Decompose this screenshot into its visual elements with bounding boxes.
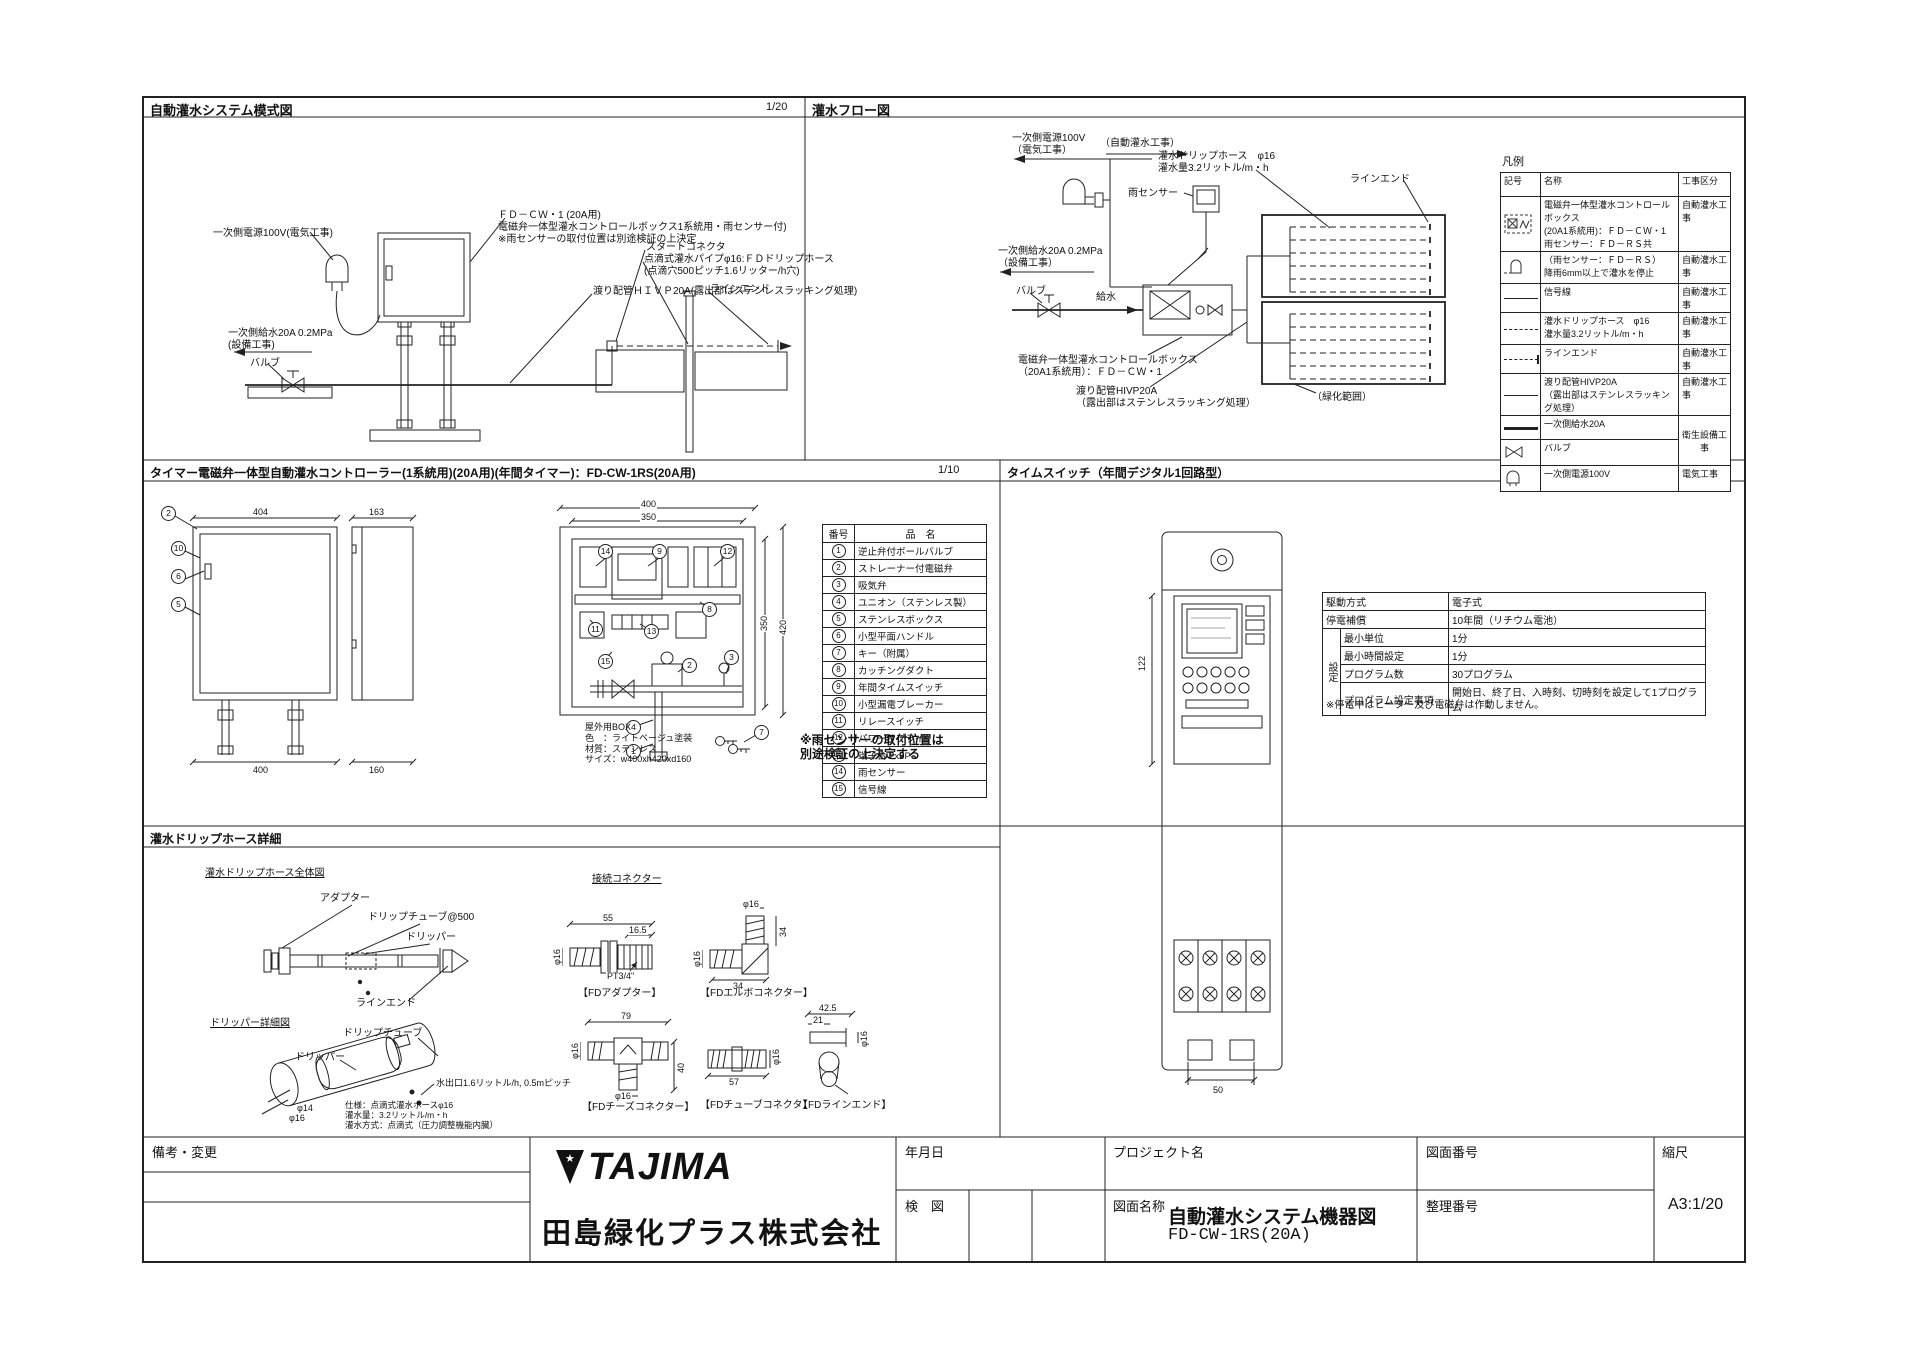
- parts-table-row: 5 ステンレスボックス: [823, 611, 987, 628]
- subtitle-hose-overall: 灌水ドリップホース全体図: [205, 868, 325, 880]
- pipe-line-symbol-icon: [1501, 374, 1541, 416]
- legend-row: 一次側給水20A 衛生設備工事: [1501, 416, 1731, 440]
- dim-elbow-dia-left: φ16: [693, 950, 702, 968]
- part-name: キー（附属）: [855, 645, 987, 662]
- part-number: 11: [832, 714, 846, 728]
- drawing-title: 自動灌水システム機器図: [1168, 1202, 1376, 1229]
- dim-inner-right2: 420: [779, 619, 788, 636]
- ref-no-label: 整理番号: [1426, 1196, 1478, 1215]
- drawing-code: FD-CW-1RS(20A): [1168, 1226, 1311, 1245]
- dim-tube-57: 57: [728, 1078, 740, 1087]
- legend-category: 自動灌水工事: [1679, 252, 1731, 284]
- flow-label-line-end: ラインエンド: [1350, 174, 1410, 186]
- spec-value: 1分: [1449, 647, 1706, 665]
- part-number: 6: [832, 629, 846, 643]
- callout-3: 3: [724, 650, 739, 665]
- timeswitch-spec-table: 駆動方式 電子式 停電補償 10年間（リチウム電池） 設定 最小単位 1分 最小…: [1322, 592, 1706, 716]
- label-start-connector: スタートコネクタ: [646, 242, 726, 254]
- project-label: プロジェクト名: [1113, 1142, 1204, 1161]
- callout-14: 14: [598, 544, 613, 559]
- callout-11: 11: [588, 622, 603, 637]
- part-name: 雨センサー: [855, 764, 987, 781]
- dim-inner-top2: 350: [640, 513, 657, 522]
- callout-5: 5: [171, 597, 186, 612]
- label-detail-tube: ドリップチューブ: [343, 1028, 422, 1040]
- callout-6: 6: [171, 569, 186, 584]
- legend-category: 自動灌水工事: [1679, 197, 1731, 252]
- dim-lineend-21: 21: [812, 1016, 824, 1025]
- legend-category: 自動灌水工事: [1679, 313, 1731, 345]
- legend-name: 信号線: [1541, 284, 1679, 313]
- label-controller-box: ＦＤ－ＣＷ・1 (20A用) 電磁弁一体型灌水コントロールボックス1系統用・雨セ…: [498, 210, 787, 246]
- legend-category: 電気工事: [1679, 466, 1731, 492]
- cad-drawing-sheet: 自動灌水システム模式図 1/20 灌水フロー図 タイマー電磁弁一体型自動灌水コン…: [0, 0, 1920, 1358]
- dim-adapter-16-5: 16.5: [628, 926, 648, 935]
- flow-label-valve: バルブ: [1016, 286, 1046, 298]
- dim-tee-dia-left: φ16: [571, 1042, 580, 1060]
- part-number: 9: [832, 680, 846, 694]
- company-name: 田島緑化プラス株式会社: [542, 1210, 882, 1252]
- dim-front-bottom: 400: [252, 766, 269, 775]
- dim-adapter-dia: φ16: [553, 948, 562, 966]
- panel-schematic-title: 自動灌水システム模式図: [150, 100, 293, 119]
- dim-tee-79: 79: [620, 1012, 632, 1021]
- legend-name: ラインエンド: [1541, 345, 1679, 374]
- legend-row: 渡り配管HIVP20A （露出部はステンレスラッキング処理） 自動灌水工事: [1501, 374, 1731, 416]
- part-number: 15: [832, 782, 846, 796]
- flow-label-power: 一次側電源100V （電気工事）: [1012, 133, 1085, 157]
- parts-table-row: 3 吸気弁: [823, 577, 987, 594]
- dim-dia16: φ16: [288, 1114, 306, 1123]
- label-drip-tube: ドリップチューブ@500: [368, 912, 474, 924]
- panel-timeswitch-title: タイムスイッチ（年間デジタル1回路型）: [1007, 464, 1229, 481]
- callout-2: 2: [161, 506, 176, 521]
- part-name: 年間タイムスイッチ: [855, 679, 987, 696]
- label-hose-line-end: ラインエンド: [356, 998, 416, 1010]
- panel-controller-scale: 1/10: [938, 464, 959, 476]
- flow-label-control-box: 電磁弁一体型灌水コントロールボックス （20A1系統用）：ＦＤ－ＣＷ・1: [1018, 355, 1198, 379]
- callout-10: 10: [171, 541, 186, 556]
- label-drip-pipe: 点滴式灌水パイプφ16:ＦＤドリップホース (点滴穴500ピッチ1.6リッター/…: [644, 254, 834, 278]
- legend-row: 信号線 自動灌水工事: [1501, 284, 1731, 313]
- scale-label: 縮尺: [1662, 1142, 1688, 1161]
- spec-label: 駆動方式: [1323, 593, 1449, 611]
- legend-name: 渡り配管HIVP20A （露出部はステンレスラッキング処理）: [1541, 374, 1679, 416]
- legend-row: （雨センサー：ＦＤ－ＲＳ） 降雨6mm以上で灌水を停止 自動灌水工事: [1501, 252, 1731, 284]
- parts-header-no: 番号: [823, 525, 855, 543]
- dim-tee-40: 40: [677, 1062, 686, 1074]
- supply-line-symbol-icon: [1501, 416, 1541, 440]
- scale-value: A3:1/20: [1668, 1196, 1723, 1214]
- legend-name: 一次側給水20A: [1541, 416, 1679, 440]
- signal-line-symbol-icon: [1501, 284, 1541, 313]
- parts-table-row: 6 小型平面ハンドル: [823, 628, 987, 645]
- legend-title: 凡例: [1502, 156, 1524, 169]
- label-water-outlet: 水出口1.6リットル/h, 0.5mピッチ: [436, 1078, 571, 1089]
- legend-row: 電磁弁一体型灌水コントロールボックス (20A1系統用)：ＦＤ－ＣＷ・1 雨セン…: [1501, 197, 1731, 252]
- drawing-no-label: 図面番号: [1426, 1142, 1478, 1161]
- connector-tube-label: 【FDチューブコネクタ】: [700, 1100, 812, 1112]
- part-number: 7: [832, 646, 846, 660]
- dim-inner-right: 350: [760, 615, 769, 632]
- controlbox-symbol-icon: [1501, 197, 1541, 252]
- part-number: 8: [832, 663, 846, 677]
- tajima-logo-star-icon: ★: [565, 1152, 575, 1165]
- connector-elbow-label: 【FDエルボコネクター】: [700, 988, 813, 1000]
- drawing-title-label: 図面名称: [1113, 1196, 1165, 1215]
- legend-name: 灌水ドリップホース φ16 灌水量3.2リットル/m・h: [1541, 313, 1679, 345]
- dim-side-top: 163: [368, 508, 385, 517]
- legend-name: バルブ: [1541, 440, 1679, 466]
- panel-driphose-title: 灌水ドリップホース詳細: [150, 830, 281, 847]
- part-name: 逆止弁付ボールバルブ: [855, 543, 987, 560]
- part-name: ユニオン（ステンレス製）: [855, 594, 987, 611]
- legend-header-category: 工事区分: [1679, 173, 1731, 197]
- flow-label-supply: 一次側給水20A 0.2MPa （設備工事）: [998, 246, 1102, 270]
- dim-inner-top: 400: [640, 500, 657, 509]
- dim-tube-dia: φ16: [772, 1048, 781, 1066]
- legend-row: 一次側電源100V 電気工事: [1501, 466, 1731, 492]
- flow-label-auto-work: （自動灌水工事）: [1100, 138, 1180, 150]
- dim-timeswitch-height: 122: [1138, 655, 1147, 672]
- date-label: 年月日: [905, 1142, 944, 1161]
- enclosure-info: 屋外用BOX 色 ：ライトベージュ塗装 材質：ステンレス サイズ：w400xh4…: [585, 722, 692, 765]
- dim-elbow-dia-top: φ16: [742, 900, 760, 909]
- spec-value: 電子式: [1449, 593, 1706, 611]
- part-name: カッチングダクト: [855, 662, 987, 679]
- parts-table-row: 15 信号線: [823, 781, 987, 798]
- part-name: 信号線: [855, 781, 987, 798]
- dim-lineend-dia: φ16: [860, 1030, 869, 1048]
- subtitle-dripper-detail: ドリッパー詳細図: [210, 1018, 290, 1030]
- valve-symbol-icon: [1501, 440, 1541, 466]
- dim-adapter-55: 55: [602, 914, 614, 923]
- flow-label-rain-sensor: 雨センサー: [1128, 188, 1178, 200]
- spec-value: 1分: [1449, 629, 1706, 647]
- dim-front-top: 404: [252, 508, 269, 517]
- flow-label-green-area: （緑化範囲）: [1312, 392, 1372, 404]
- part-name: リレースイッチ: [855, 713, 987, 730]
- subtitle-connectors: 接続コネクター: [592, 874, 662, 886]
- parts-table-row: 4 ユニオン（ステンレス製）: [823, 594, 987, 611]
- callout-7-key: 7: [754, 725, 769, 740]
- part-number: 10: [832, 697, 846, 711]
- parts-table-row: 14 雨センサー: [823, 764, 987, 781]
- drip-hose-symbol-icon: [1501, 313, 1541, 345]
- spec-label: 最小時間設定: [1341, 647, 1449, 665]
- legend-row: 灌水ドリップホース φ16 灌水量3.2リットル/m・h 自動灌水工事: [1501, 313, 1731, 345]
- dim-dia14: φ14: [296, 1104, 314, 1113]
- remarks-label: 備考・変更: [152, 1142, 217, 1161]
- panel-controller-title: タイマー電磁弁一体型自動灌水コントローラー(1系統用)(20A用)(年間タイマー…: [150, 464, 696, 481]
- label-dripper: ドリッパー: [406, 932, 456, 944]
- part-name: 小型平面ハンドル: [855, 628, 987, 645]
- dim-side-bottom: 160: [368, 766, 385, 775]
- panel-schematic-scale: 1/20: [766, 101, 787, 113]
- legend-name: 電磁弁一体型灌水コントロールボックス (20A1系統用)：ＦＤ－ＣＷ・1 雨セン…: [1541, 197, 1679, 252]
- label-power-source: 一次側電源100V(電気工事): [213, 228, 333, 240]
- part-number: 1: [832, 544, 846, 558]
- line-end-symbol-icon: [1501, 345, 1541, 374]
- legend-category: 自動灌水工事: [1679, 374, 1731, 416]
- spec-value: 10年間（リチウム電池）: [1449, 611, 1706, 629]
- part-name: 吸気弁: [855, 577, 987, 594]
- legend-name: 一次側電源100V: [1541, 466, 1679, 492]
- dim-lineend-42-5: 42.5: [818, 1004, 838, 1013]
- timeswitch-drawing: [1149, 532, 1282, 1085]
- label-line-end: ラインエンド: [710, 284, 770, 296]
- part-number: 4: [832, 595, 846, 609]
- part-name: ストレーナー付電磁弁: [855, 560, 987, 577]
- spec-label: 最小単位: [1341, 629, 1449, 647]
- legend-header-symbol: 記号: [1501, 173, 1541, 197]
- part-name: 小型漏電ブレーカー: [855, 696, 987, 713]
- parts-table-row: 11 リレースイッチ: [823, 713, 987, 730]
- spec-label: プログラム数: [1341, 665, 1449, 683]
- callout-15: 15: [598, 654, 613, 669]
- parts-table-row: 7 キー（附属）: [823, 645, 987, 662]
- label-valve: バルブ: [250, 358, 280, 370]
- parts-table-row: 8 カッチングダクト: [823, 662, 987, 679]
- controller-views-drawing: [175, 505, 786, 765]
- check-label: 検 図: [905, 1196, 944, 1215]
- legend-row: ラインエンド 自動灌水工事: [1501, 345, 1731, 374]
- dim-adapter-thread: PT3/4": [606, 972, 635, 981]
- rain-sensor-note: ※雨センサーの取付位置は 別途検証の上決定する: [800, 733, 944, 762]
- hose-spec: 仕様：点滴式灌水ホースφ16 灌水量：3.2リットル/m・h 灌水方式：点滴式（…: [345, 1100, 498, 1131]
- legend-table: 記号 名称 工事区分 電磁弁一体型灌水コントロールボックス (20A1系統用)：…: [1500, 172, 1731, 492]
- callout-13: 13: [644, 624, 659, 639]
- connector-lineend-label: 【FDラインエンド】: [798, 1100, 891, 1112]
- label-detail-dripper: ドリッパー: [295, 1052, 345, 1064]
- timeswitch-note: ※停電中はヒーター及び電磁弁は作動しません。: [1326, 700, 1544, 712]
- callout-8: 8: [702, 602, 717, 617]
- legend-category: 自動灌水工事: [1679, 345, 1731, 374]
- dim-timeswitch-width: 50: [1212, 1086, 1224, 1095]
- legend-header-name: 名称: [1541, 173, 1679, 197]
- label-adapter: アダプター: [320, 893, 370, 905]
- parts-table-row: 1 逆止弁付ボールバルブ: [823, 543, 987, 560]
- callout-2b: 2: [682, 658, 697, 673]
- part-number: 14: [832, 765, 846, 779]
- power-plug-symbol-icon: [1501, 466, 1541, 492]
- part-number: 2: [832, 561, 846, 575]
- legend-category: 自動灌水工事: [1679, 284, 1731, 313]
- parts-table-row: 2 ストレーナー付電磁弁: [823, 560, 987, 577]
- flow-label-feed: 給水: [1096, 292, 1116, 304]
- callout-9: 9: [652, 544, 667, 559]
- part-name: ステンレスボックス: [855, 611, 987, 628]
- label-water-supply: 一次側給水20A 0.2MPa (設備工事): [228, 328, 332, 352]
- legend-category: 衛生設備工事: [1679, 416, 1731, 466]
- spec-value: 30プログラム: [1449, 665, 1706, 683]
- rain-sensor-symbol-icon: [1501, 252, 1541, 284]
- callout-12: 12: [720, 544, 735, 559]
- parts-table-row: 10 小型漏電ブレーカー: [823, 696, 987, 713]
- flow-label-drip-hose: 灌水ドリップホース φ16 灌水量3.2リットル/m・h: [1158, 151, 1275, 175]
- parts-header-name: 品 名: [855, 525, 987, 543]
- legend-name: （雨センサー：ＦＤ－ＲＳ） 降雨6mm以上で灌水を停止: [1541, 252, 1679, 284]
- panel-flow-title: 灌水フロー図: [812, 100, 890, 119]
- tajima-logo-text: TAJIMA: [588, 1146, 733, 1189]
- connector-tee-label: 【FDチーズコネクター】: [582, 1102, 694, 1114]
- part-number: 5: [832, 612, 846, 626]
- connector-adapter-label: 【FDアダプター】: [578, 988, 661, 1000]
- dim-tee-dia-bottom: φ16: [614, 1092, 632, 1101]
- dim-elbow-34r: 34: [779, 926, 788, 938]
- part-number: 3: [832, 578, 846, 592]
- parts-table-row: 9 年間タイムスイッチ: [823, 679, 987, 696]
- spec-label: 停電補償: [1323, 611, 1449, 629]
- flow-label-pipe: 渡り配管HIVP20A （露出部はステンレスラッキング処理）: [1076, 386, 1256, 410]
